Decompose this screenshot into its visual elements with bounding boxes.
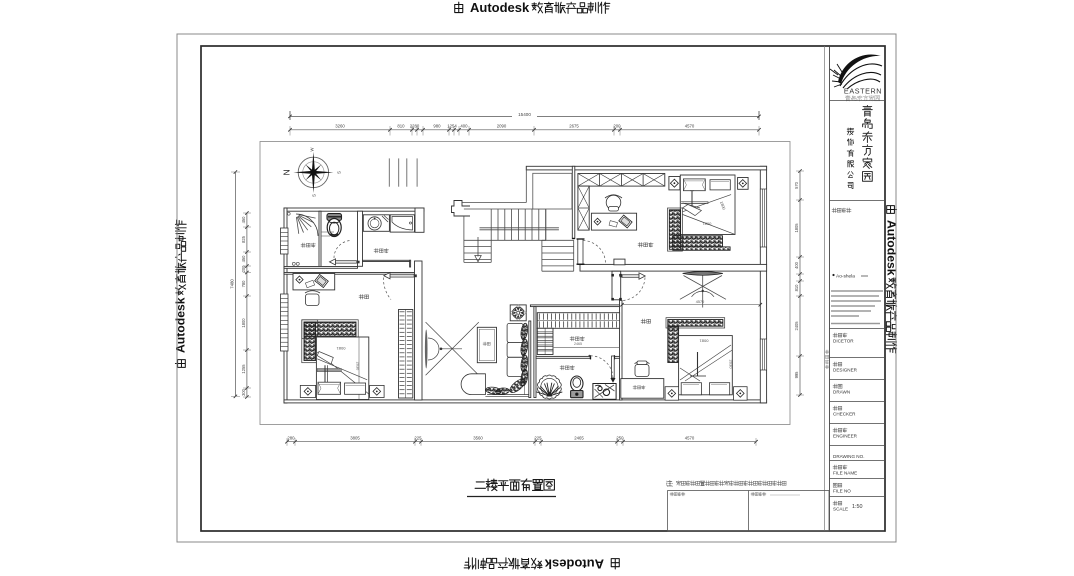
svg-text:0081: 0081 xyxy=(703,222,712,227)
svg-text:3260: 3260 xyxy=(335,124,345,129)
svg-text:DESIGNER: DESIGNER xyxy=(833,368,858,373)
svg-text:200: 200 xyxy=(613,124,621,129)
svg-text:DICETOR: DICETOR xyxy=(833,339,854,344)
svg-text:450: 450 xyxy=(241,255,246,263)
svg-text:2675: 2675 xyxy=(569,124,579,129)
svg-text:1255: 1255 xyxy=(241,364,246,374)
svg-text:ENGINEER: ENGINEER xyxy=(833,434,858,439)
svg-text:Autodesk: Autodesk xyxy=(544,557,604,572)
svg-text:2465: 2465 xyxy=(574,436,584,441)
svg-text:780: 780 xyxy=(241,280,246,288)
svg-text:3560: 3560 xyxy=(473,436,483,441)
svg-text:225: 225 xyxy=(414,436,422,441)
svg-text:W: W xyxy=(310,147,315,151)
svg-text:2030: 2030 xyxy=(356,362,361,371)
svg-text:1800: 1800 xyxy=(241,318,246,328)
svg-text:7480: 7480 xyxy=(229,279,234,289)
svg-text:980: 980 xyxy=(433,124,441,129)
svg-text:2405: 2405 xyxy=(794,321,799,331)
svg-text:SCALE: SCALE xyxy=(833,507,848,512)
svg-text:CHECKER: CHECKER xyxy=(833,412,856,417)
svg-text:1805: 1805 xyxy=(794,223,799,233)
svg-text:450: 450 xyxy=(241,216,246,224)
svg-text:N: N xyxy=(282,169,292,175)
svg-text:2030: 2030 xyxy=(729,360,734,370)
svg-text:570: 570 xyxy=(794,181,799,189)
svg-text:4570: 4570 xyxy=(685,436,695,441)
svg-text:FILE NO: FILE NO xyxy=(833,489,851,494)
svg-text:S: S xyxy=(312,194,317,197)
svg-text:Autodesk: Autodesk xyxy=(470,0,530,15)
svg-text:EASTERN: EASTERN xyxy=(844,87,882,96)
svg-text:FILE NAME: FILE NAME xyxy=(833,471,857,476)
svg-text:400: 400 xyxy=(794,261,799,269)
svg-text:3805: 3805 xyxy=(350,436,360,441)
svg-text:250: 250 xyxy=(616,436,624,441)
svg-text:DRAWN: DRAWN xyxy=(833,390,850,395)
svg-text:810: 810 xyxy=(397,124,405,129)
svg-text:2090: 2090 xyxy=(497,124,507,129)
svg-text:0081: 0081 xyxy=(699,339,709,344)
svg-text:300: 300 xyxy=(241,388,246,396)
svg-text:200: 200 xyxy=(241,265,246,273)
svg-text:995: 995 xyxy=(794,371,799,379)
svg-text:2280: 2280 xyxy=(410,124,420,129)
svg-text:280: 280 xyxy=(287,436,295,441)
svg-text:1:50: 1:50 xyxy=(852,504,863,510)
svg-text:825: 825 xyxy=(241,235,246,243)
svg-text:Ao-shela: Ao-shela xyxy=(836,274,855,280)
svg-text:4570: 4570 xyxy=(685,124,695,129)
svg-text:15400: 15400 xyxy=(518,112,531,117)
svg-text:4570: 4570 xyxy=(696,300,704,304)
svg-text:1254: 1254 xyxy=(447,124,457,129)
svg-text:810: 810 xyxy=(794,284,799,292)
svg-text:2465: 2465 xyxy=(574,342,582,346)
svg-text:400: 400 xyxy=(460,124,468,129)
svg-text:225: 225 xyxy=(534,436,542,441)
svg-text:S: S xyxy=(337,171,342,174)
svg-text:Autodesk: Autodesk xyxy=(174,297,188,353)
svg-text:DRAWING NO.: DRAWING NO. xyxy=(833,454,864,459)
svg-text:0081: 0081 xyxy=(336,346,346,351)
